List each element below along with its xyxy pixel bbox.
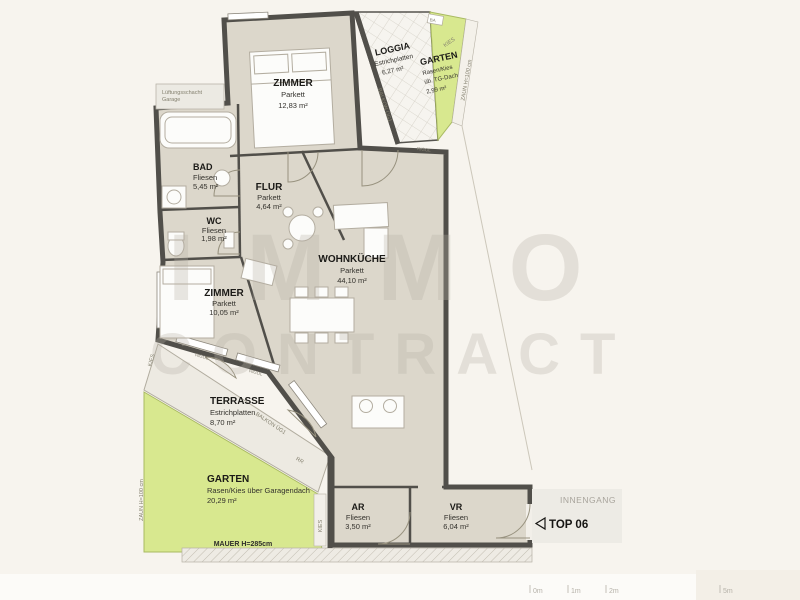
ar-area: 3,50 m²	[345, 522, 371, 531]
bad-floor: Fliesen	[193, 173, 217, 182]
window-zimmer1	[228, 12, 268, 20]
floorplan-page: IMMO CONTRACT ZIMMER Parkett 12,83 m² LO…	[0, 0, 800, 600]
page-bottom-strip	[0, 574, 696, 600]
mauer-strip	[182, 548, 532, 562]
garten-area: 20,29 m²	[207, 496, 237, 505]
wc-name: WC	[207, 216, 222, 226]
garten-name: GARTEN	[207, 474, 249, 485]
watermark-line2: CONTRACT	[150, 322, 635, 387]
kitchen-counter	[352, 396, 404, 428]
innengang-label: INNENGANG	[560, 495, 616, 505]
terrasse-name: TERRASSE	[210, 396, 265, 407]
zimmer1-area: 12,83 m²	[278, 101, 308, 110]
terrasse-floor: Estrichplatten	[210, 408, 255, 417]
flur-floor: Parkett	[257, 193, 282, 202]
kies-bottom-label: KIES	[318, 519, 324, 532]
ar-floor: Fliesen	[346, 513, 370, 522]
page-corner-strip	[696, 570, 800, 600]
shaft-label-2: Garage	[162, 97, 180, 103]
scale-tick-3: 5m	[723, 588, 733, 595]
wohnkueche-name: WOHNKÜCHE	[318, 252, 386, 265]
vr-name: VR	[450, 502, 463, 512]
vr-floor: Fliesen	[444, 513, 468, 522]
washing-machine	[162, 186, 186, 208]
flur-name: FLUR	[256, 182, 283, 193]
zaun-left-label: ZAUN H=100 cm	[139, 479, 145, 521]
wc-area: 1,98 m²	[201, 234, 227, 243]
bad-area: 5,45 m²	[193, 182, 219, 191]
zimmer2-name: ZIMMER	[204, 288, 244, 299]
ba-label: BA	[429, 17, 436, 23]
shaft-label-1: Lüftungsschacht	[162, 90, 203, 96]
scale-tick-1: 1m	[571, 588, 581, 595]
mauer-label: MAUER H=285cm	[214, 541, 273, 548]
watermark-line1: IMMO	[168, 215, 635, 321]
bathtub-inner	[165, 117, 231, 143]
zimmer1-name: ZIMMER	[273, 78, 313, 89]
floorplan-drawing: IMMO CONTRACT ZIMMER Parkett 12,83 m² LO…	[0, 0, 800, 600]
wohnkueche-area: 44,10 m²	[337, 276, 367, 285]
vr-area: 6,04 m²	[443, 522, 469, 531]
vr-passage	[418, 483, 442, 491]
top-unit-label: TOP 06	[549, 519, 588, 531]
flur-area: 4,64 m²	[256, 202, 282, 211]
wohnkueche-floor: Parkett	[340, 266, 365, 275]
terrasse-area: 8,70 m²	[210, 418, 236, 427]
zimmer2-area: 10,05 m²	[209, 308, 239, 317]
ar-name: AR	[352, 502, 365, 512]
zimmer2-floor: Parkett	[212, 299, 237, 308]
zimmer1-floor: Parkett	[281, 90, 306, 99]
bad-name: BAD	[193, 162, 213, 172]
garten-floor: Rasen/Kies über Garagendach	[207, 486, 310, 495]
scale-tick-0: 0m	[533, 588, 543, 595]
scale-tick-2: 2m	[609, 588, 619, 595]
